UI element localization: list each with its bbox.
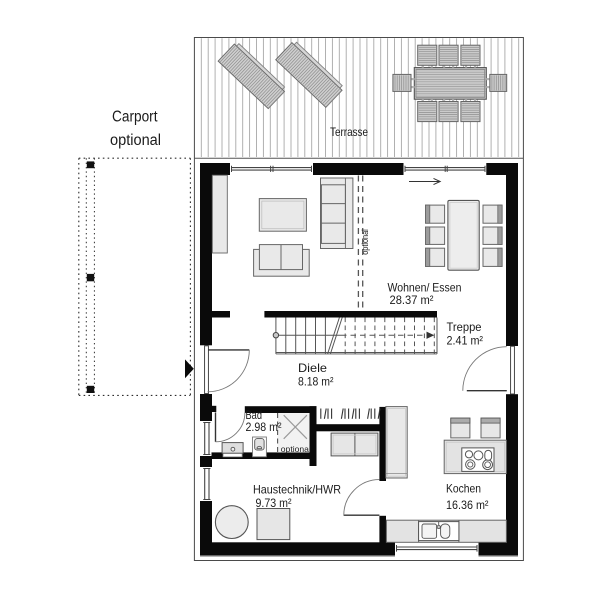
svg-text:optional: optional (360, 229, 370, 255)
svg-text:Terrasse: Terrasse (330, 125, 368, 139)
svg-text:2.41 m²: 2.41 m² (447, 333, 484, 347)
svg-text:16.36 m²: 16.36 m² (446, 498, 489, 512)
svg-text:9.73 m²: 9.73 m² (256, 496, 292, 510)
svg-text:Kochen: Kochen (446, 481, 481, 495)
svg-text:Treppe: Treppe (447, 320, 482, 334)
svg-text:Diele: Diele (298, 361, 327, 375)
svg-text:optional: optional (110, 132, 161, 149)
svg-text:Carport: Carport (112, 109, 158, 126)
svg-text:optional: optional (281, 444, 311, 454)
svg-text:Haustechnik/HWR: Haustechnik/HWR (253, 483, 341, 497)
svg-text:28.37 m²: 28.37 m² (390, 293, 434, 307)
svg-text:8.18 m²: 8.18 m² (298, 375, 334, 389)
svg-text:2.98 m²: 2.98 m² (246, 420, 282, 434)
